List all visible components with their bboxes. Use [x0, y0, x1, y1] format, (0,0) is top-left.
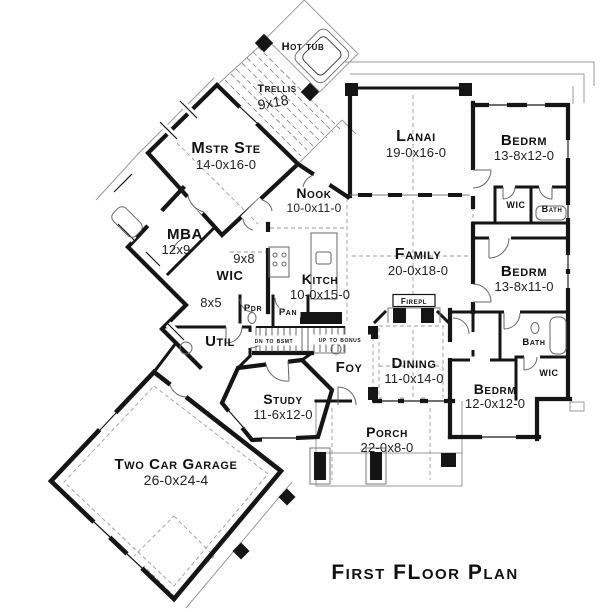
label-lanai: Lanai19-0x16-0 — [386, 128, 446, 160]
svg-text:WIC: WIC — [216, 268, 243, 283]
label-wic-2-dims: 8x5 — [200, 295, 222, 310]
svg-text:11-6x12-0: 11-6x12-0 — [253, 407, 312, 422]
lanai-column-right — [459, 83, 472, 96]
svg-text:12-0x12-0: 12-0x12-0 — [465, 396, 525, 411]
label-study: Study11-6x12-0 — [253, 391, 312, 422]
garage-post-2 — [233, 543, 250, 560]
label-bath-2: Bath — [522, 337, 545, 348]
svg-text:Bedrm: Bedrm — [501, 132, 547, 149]
porch-column-1 — [314, 452, 326, 480]
svg-text:22-0x8-0: 22-0x8-0 — [361, 440, 414, 455]
label-pdr: Pdr — [244, 303, 262, 314]
trellis-post-1 — [255, 34, 273, 52]
svg-text:26-0x24-4: 26-0x24-4 — [144, 472, 209, 488]
svg-text:WIC: WIC — [539, 368, 558, 378]
garage-post-1 — [279, 489, 296, 506]
svg-text:WIC: WIC — [506, 200, 525, 210]
svg-text:Foy: Foy — [336, 359, 363, 376]
porch-column-2 — [370, 452, 382, 480]
svg-text:Dining: Dining — [392, 355, 437, 372]
svg-text:Firepl: Firepl — [401, 297, 427, 306]
svg-text:10-0x11-0: 10-0x11-0 — [287, 201, 342, 215]
label-up-to-bonus: up to bonus — [309, 335, 371, 345]
svg-text:Porch: Porch — [366, 424, 408, 440]
label-dining: Dining11-0x14-0 — [384, 355, 443, 386]
tub-bath2 — [550, 317, 566, 354]
svg-text:Pan: Pan — [279, 307, 297, 318]
svg-text:dn to bsmt: dn to bsmt — [255, 336, 293, 345]
label-wic-3: WIC — [539, 368, 558, 378]
svg-text:Bedrm: Bedrm — [501, 263, 547, 280]
toilet-pdr — [248, 313, 256, 324]
svg-text:Hot tub: Hot tub — [282, 41, 325, 53]
svg-text:Bedrm: Bedrm — [474, 381, 517, 397]
dining-pillar-2 — [368, 387, 378, 400]
svg-text:Bath: Bath — [542, 204, 563, 214]
svg-text:Kitch: Kitch — [302, 271, 338, 287]
label-garage: Two Car Garage26-0x24-4 — [115, 456, 238, 488]
trellis-post-2 — [301, 83, 319, 101]
lanai-column-left — [345, 83, 358, 96]
kitchen-range — [269, 247, 289, 277]
svg-text:12x9: 12x9 — [162, 242, 191, 257]
svg-text:Util: Util — [205, 333, 235, 350]
svg-text:Family: Family — [395, 246, 442, 263]
label-hall-9x8: 9x8 — [233, 251, 255, 266]
toilet-bath2 — [531, 323, 539, 334]
label-wic-1: WIC — [506, 200, 525, 210]
svg-text:Mstr Ste: Mstr Ste — [191, 140, 260, 157]
svg-text:Bath: Bath — [522, 337, 545, 348]
svg-text:Two Car Garage: Two Car Garage — [115, 456, 238, 473]
plan-title: First FLoor Plan — [300, 561, 550, 585]
label-mstr-ste: Mstr Ste14-0x16-0 — [191, 140, 260, 172]
label-pan: Pan — [276, 307, 301, 318]
svg-text:14-0x16-0: 14-0x16-0 — [196, 157, 256, 172]
svg-text:11-0x14-0: 11-0x14-0 — [384, 371, 443, 386]
svg-text:Lanai: Lanai — [396, 128, 436, 145]
svg-text:9x8: 9x8 — [233, 251, 255, 266]
label-dn-to-bsmt: dn to bsmt — [247, 336, 302, 346]
svg-text:8x5: 8x5 — [200, 295, 222, 310]
label-bedrm-2: Bedrm13-8x11-0 — [494, 263, 553, 294]
label-bedrm-3: Bedrm12-0x12-0 — [465, 381, 525, 411]
svg-text:19-0x16-0: 19-0x16-0 — [386, 145, 446, 160]
label-util: Util — [205, 333, 235, 350]
svg-text:13-8x11-0: 13-8x11-0 — [494, 279, 553, 294]
svg-text:Nook: Nook — [296, 185, 331, 201]
label-wic-2: WIC — [216, 268, 243, 283]
label-porch: Porch22-0x8-0 — [361, 424, 414, 455]
svg-text:13-8x12-0: 13-8x12-0 — [494, 148, 554, 163]
label-bedrm-1: Bedrm13-8x12-0 — [494, 132, 554, 163]
label-bath-1: Bath — [542, 204, 563, 214]
svg-text:up to bonus: up to bonus — [319, 335, 362, 344]
label-family: Family20-0x18-0 — [388, 246, 448, 278]
floor-plan-page: Hot tubTrellis9x18Mstr Ste14-0x16-0Lanai… — [0, 0, 612, 612]
label-foy: Foy — [336, 359, 363, 376]
kitchen-sink — [316, 252, 331, 264]
svg-text:Pdr: Pdr — [244, 303, 262, 314]
svg-text:10-0x15-0: 10-0x15-0 — [290, 287, 350, 302]
svg-text:MBA: MBA — [167, 226, 203, 243]
svg-text:Study: Study — [263, 391, 303, 407]
label-kitch: Kitch10-0x15-0 — [290, 271, 350, 302]
porch-pier — [441, 453, 456, 467]
svg-text:20-0x18-0: 20-0x18-0 — [388, 263, 448, 278]
floor-plan-drawing: Hot tubTrellis9x18Mstr Ste14-0x16-0Lanai… — [0, 0, 612, 612]
label-firepl: Firepl — [393, 295, 435, 307]
label-mba: MBA12x9 — [162, 226, 203, 257]
label-hot-tub: Hot tub — [282, 41, 325, 53]
